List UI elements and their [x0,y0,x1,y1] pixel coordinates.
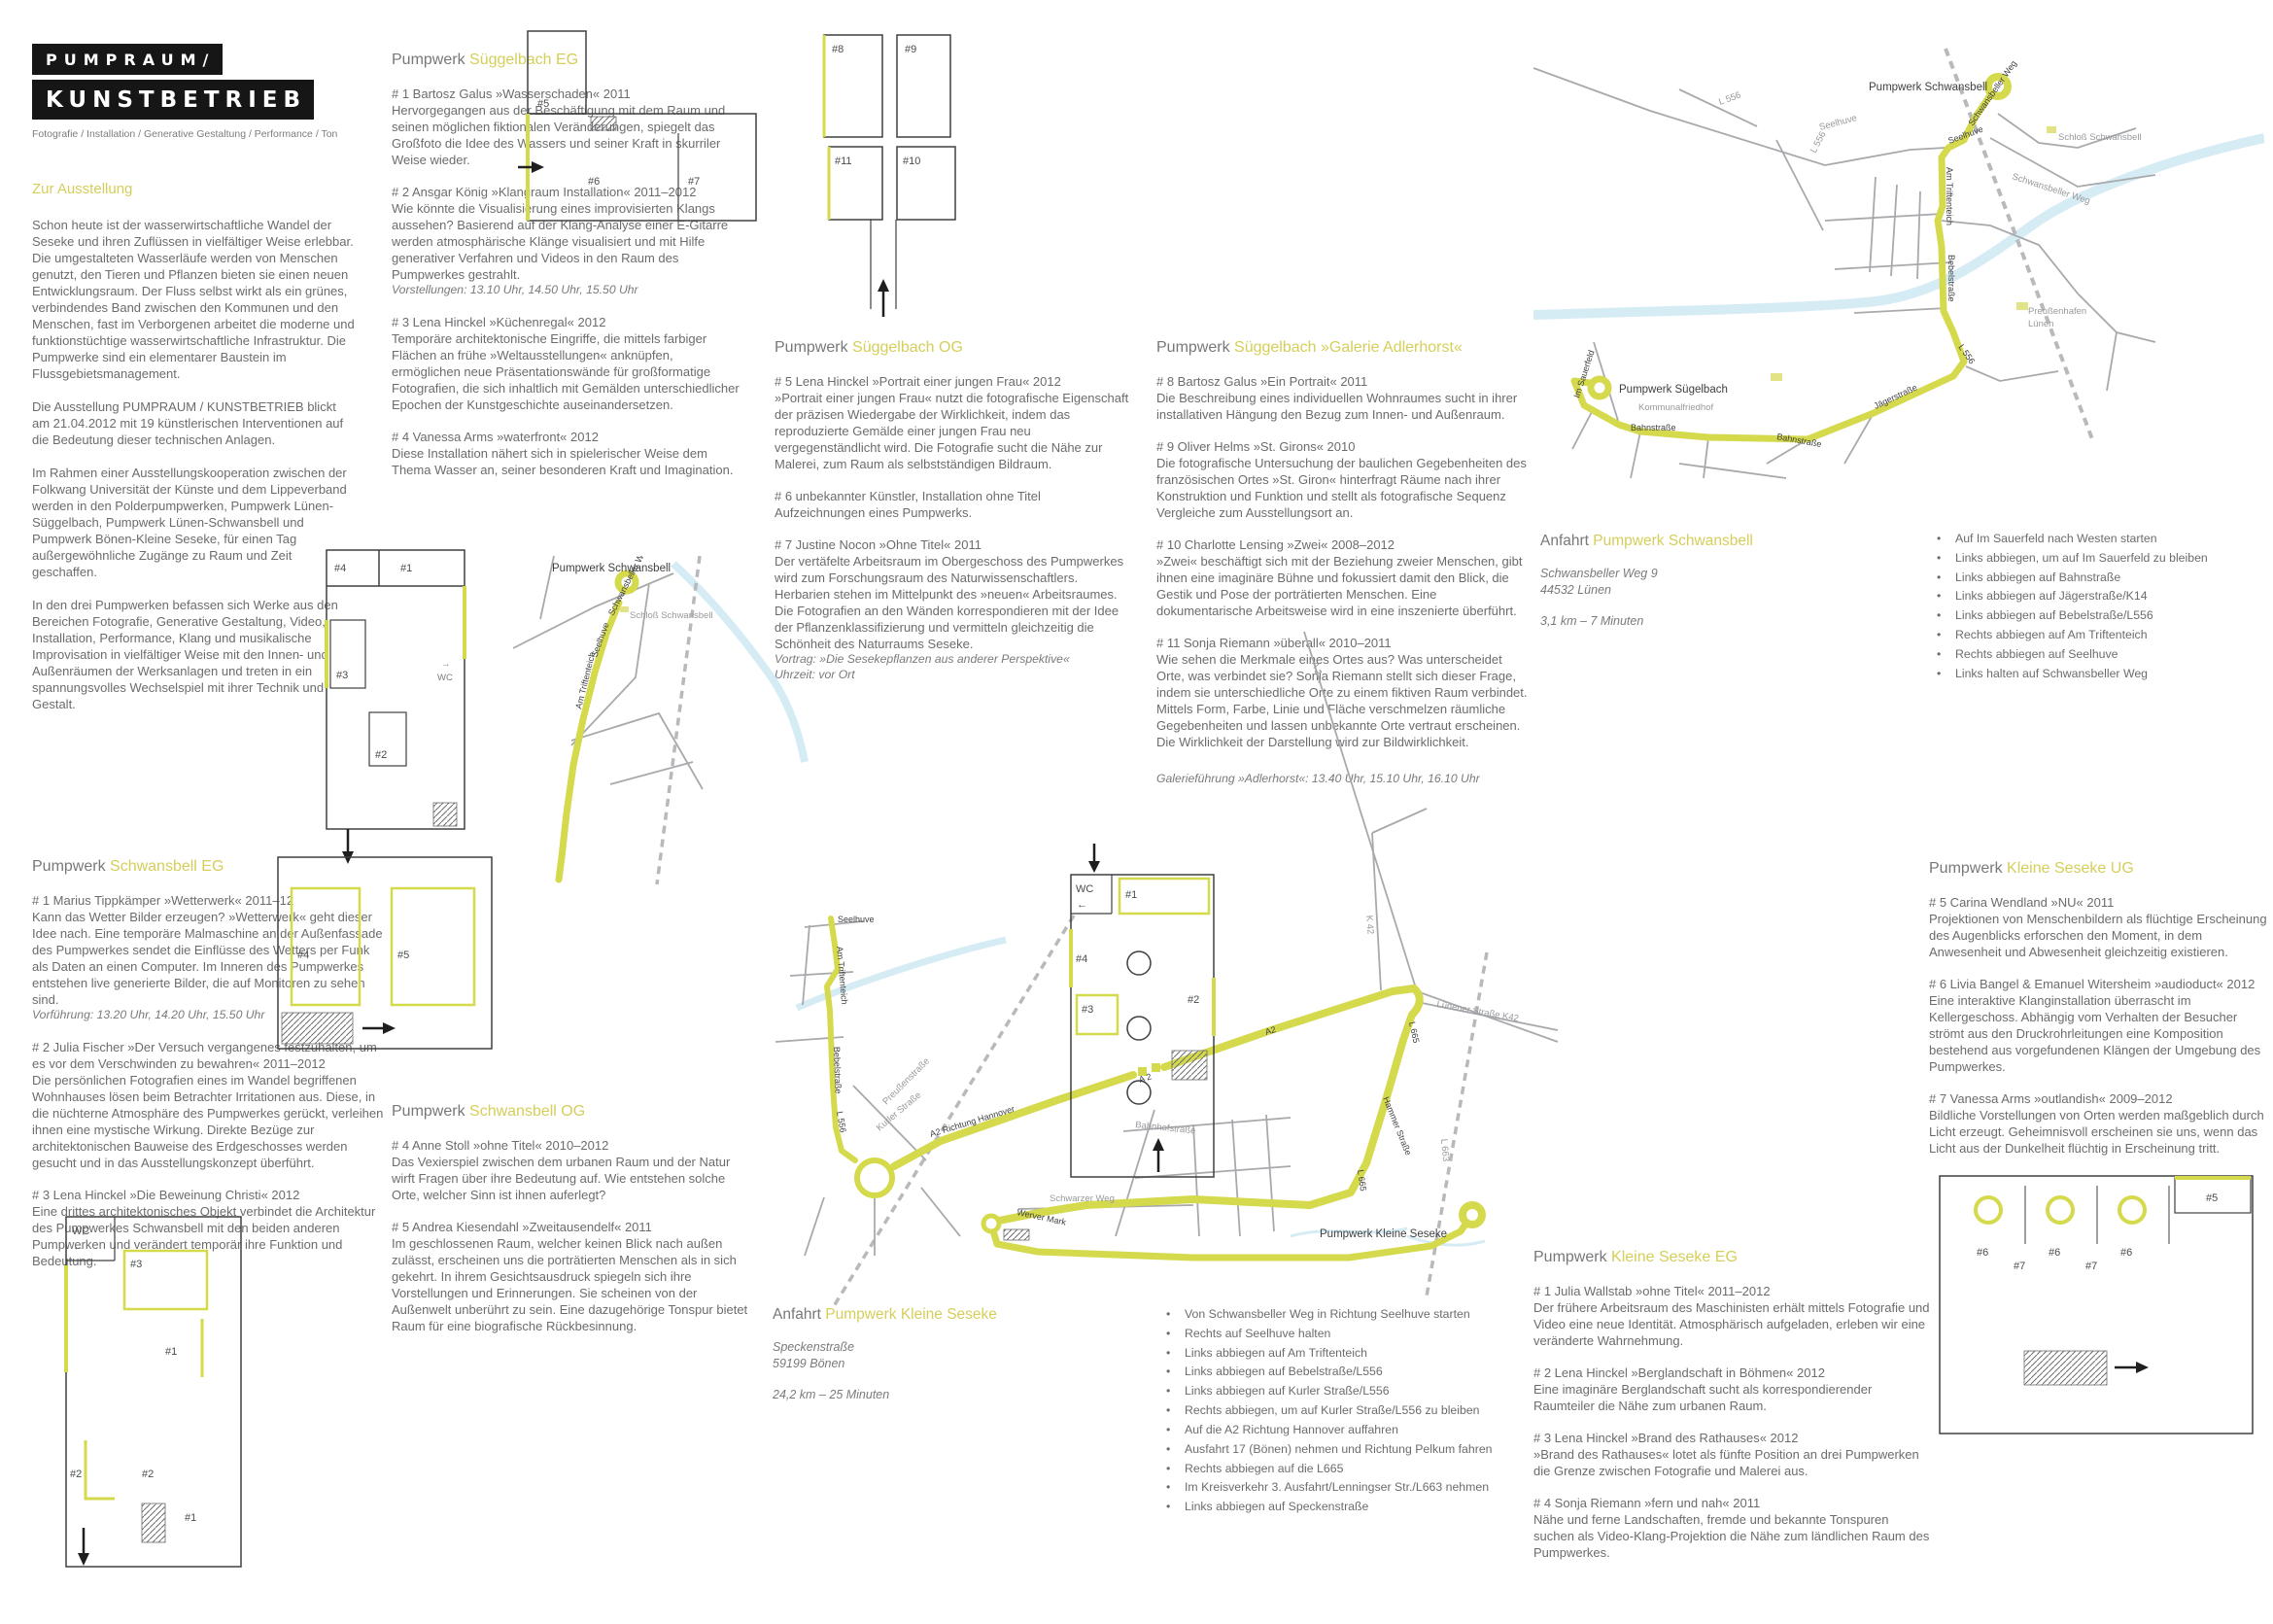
artwork-description: Die persönlichen Fotografien eines im Wa… [32,1072,384,1171]
anfahrt-heading-prefix: Anfahrt [773,1306,821,1323]
direction-step: Rechts abbiegen auf Seelhuve [1932,646,2267,664]
room-label: #7 [2085,1261,2097,1272]
artwork-title: # 3 Lena Hinckel »Brand des Rathauses« 2… [1533,1430,1930,1446]
directions-list-schwansbell: Auf Im Sauerfeld nach Westen startenLink… [1932,531,2267,685]
room-label: #2 [375,749,387,761]
road-label: Lünener Straße K42 [1435,999,1519,1024]
floorplan-seseke-ug: #5 #6 #7 #6 #7 #6 [1932,1157,2262,1443]
room-label: #1 [1125,889,1137,901]
artwork-description: Aufzeichnungen eines Pumpwerks. [775,504,1132,521]
artwork-description: Projektionen von Menschenbildern als flü… [1929,911,2269,960]
section-heading-accent: Süggelbach »Galerie Adlerhorst« [1234,339,1463,356]
room-label: #9 [905,44,916,55]
section-heading-accent: Süggelbach OG [852,339,963,356]
entry-list: # 1 Julia Wallstab »ohne Titel« 2011–201… [1533,1283,1930,1561]
floorplan-sueggelbach-og: #5 #6 #7 [518,21,766,230]
intro-section: Zur Ausstellung Schon heute ist der wass… [32,180,355,729]
poi-friedhof [1771,373,1782,381]
map-label-preussenhafen: Preußenhafen [2028,306,2086,317]
direction-step: Ausfahrt 17 (Bönen) nehmen und Richtung … [1161,1441,1569,1459]
route-label: Am Triftenteich [1945,167,1954,225]
artwork-entry: # 3 Lena Hinckel »Küchenregal« 2012 Temp… [392,314,743,413]
direction-step: Links abbiegen auf Jägerstraße/K14 [1932,588,2267,605]
section-heading-accent: Kleine Seseke UG [2007,860,2134,877]
artwork-title: # 3 Lena Hinckel »Küchenregal« 2012 [392,314,743,330]
direction-step: Rechts auf Seelhuve halten [1161,1326,1569,1343]
artwork-description: Nähe und ferne Landschaften, fremde und … [1533,1511,1930,1561]
artwork-title: # 9 Oliver Helms »St. Girons« 2010 [1156,438,1528,455]
logo-line2: KUNSTBETRIEB [32,80,314,120]
artwork-title: # 7 Vanessa Arms »outlandish« 2009–2012 [1929,1090,2269,1107]
room-label: #2 [1188,994,1199,1006]
direction-step: Von Schwansbeller Weg in Richtung Seelhu… [1161,1306,1569,1324]
direction-step: Rechts abbiegen, um auf Kurler Straße/L5… [1161,1402,1569,1420]
directions-list-seseke: Von Schwansbeller Weg in Richtung Seelhu… [1161,1306,1569,1518]
artwork-title: # 8 Bartosz Galus »Ein Portrait« 2011 [1156,373,1528,390]
room-label: #1 [185,1512,196,1524]
anfahrt-heading-accent: Pumpwerk Schwansbell [1593,533,1753,549]
anfahrt-heading-accent: Pumpwerk Kleine Seseke [825,1306,997,1323]
poi-preussenhafen [2016,302,2028,310]
artwork-title: # 6 Livia Bangel & Emanuel Witersheim »a… [1929,976,2269,992]
wc-note: WC [437,673,453,683]
wc-arrow-note: → [441,659,451,670]
section-heading-prefix: Pumpwerk [32,858,106,875]
artwork-title: # 4 Sonja Riemann »fern und nah« 2011 [1533,1495,1930,1511]
room-label: #11 [835,155,852,167]
floorplan-sueggelbach-eg: #4 #1 #3 #2 → WC [319,542,479,868]
artwork-entry: # 4 Sonja Riemann »fern und nah« 2011 Nä… [1533,1495,1930,1561]
section-seseke-eg: Pumpwerk Kleine Seseke EG # 1 Julia Wall… [1533,1248,1930,1576]
artwork-entry: # 3 Lena Hinckel »Brand des Rathauses« 2… [1533,1430,1930,1479]
road-label: A 2 [1309,661,1324,676]
floorplan-seseke-eg: WC ← #1 #4 #3 #2 [1063,842,1223,1206]
artwork-entry: # 5 Lena Hinckel »Portrait einer jungen … [775,373,1132,472]
road-label: L 663 [1438,1138,1451,1161]
room-label: #5 [2206,1192,2218,1204]
anfahrt-heading: Anfahrt Pumpwerk Schwansbell [1540,533,1861,550]
route-label: Seelhuve [838,915,875,924]
room-label: #1 [165,1346,177,1358]
room-label: #4 [1076,953,1087,965]
room-label: #4 [297,950,309,961]
room-label: #7 [688,176,700,188]
intro-paragraphs: Schon heute ist der wasserwirtschaftlich… [32,217,355,712]
brochure-page: PUMPRAUM/ KUNSTBETRIEB Fotografie / Inst… [0,0,2273,1624]
artwork-title: # 7 Justine Nocon »Ohne Titel« 2011 [775,536,1132,553]
direction-step: Links abbiegen auf Bahnstraße [1932,570,2267,587]
artwork-description: Die Beschreibung eines individuellen Woh… [1156,390,1528,423]
artwork-title: # 4 Vanessa Arms »waterfront« 2012 [392,429,743,445]
map-label-friedhof: Kommunalfriedhof [1638,402,1713,413]
floorplan-schwansbell-eg: WC ← #3 #1 #2 #2 #1 [56,1207,251,1596]
distance-duration: 3,1 km – 7 Minuten [1540,614,1861,628]
artwork-entry: # 8 Bartosz Galus »Ein Portrait« 2011 Di… [1156,373,1528,423]
section-heading-accent: Kleine Seseke EG [1611,1249,1738,1265]
road-label: Sch­wansbeller Weg [2011,171,2091,206]
artwork-title: # 1 Julia Wallstab »ohne Titel« 2011–201… [1533,1283,1930,1299]
distance-duration: 24,2 km – 25 Minuten [773,1388,1093,1401]
map-label-pumpwerk-kleine-seseke: Pumpwerk Kleine Seseke [1320,1228,1447,1240]
route-label: L 665 [1407,1020,1421,1044]
river-seseke [1533,138,2264,315]
artwork-entry: # 6 unbekannter Künstler, Installation o… [775,488,1132,521]
logo-line1: PUMPRAUM/ [32,44,223,75]
artwork-description: »Portrait einer jungen Frau« nutzt die f… [775,390,1132,472]
intro-paragraph: Die Ausstellung PUMPRAUM / KUNSTBETRIEB … [32,398,355,448]
section-heading-prefix: Pumpwerk [392,52,465,68]
map-boenen-anfahrt: Pumpwerk Schwansbell Schloß Schwansbell … [513,556,1563,1306]
artwork-entry: # 9 Oliver Helms »St. Girons« 2010 Die f… [1156,438,1528,521]
room-label: #6 [588,176,600,188]
anfahrt-schwansbell: Anfahrt Pumpwerk Schwansbell Schwansbell… [1540,533,1861,628]
wc-arrow: ← [73,1241,84,1253]
room-label: #2 [70,1469,82,1480]
map-label-pumpwerk-schwansbell: Pumpwerk Schwansbell [552,563,671,574]
room-label: #6 [2120,1247,2132,1259]
artwork-title: # 6 unbekannter Künstler, Installation o… [775,488,1132,504]
direction-step: Links abbiegen auf Speckenstraße [1161,1499,1569,1516]
room-label: #10 [903,155,920,167]
section-heading: Pumpwerk Süggelbach OG [775,338,1132,359]
room-label: #7 [2014,1261,2025,1272]
road-network [1533,68,2155,478]
end-marker [1463,1205,1482,1225]
route-label: Hammer Straße [1381,1095,1413,1157]
direction-step: Links abbiegen auf Am Triftenteich [1161,1345,1569,1363]
artwork-entry: # 4 Vanessa Arms »waterfront« 2012 Diese… [392,429,743,478]
road-label: K 42 [1363,915,1376,934]
address-line-2: 59199 Bönen [773,1356,1093,1372]
artwork-note: Vorstellungen: 13.10 Uhr, 14.50 Uhr, 15.… [392,283,743,298]
intro-heading: Zur Ausstellung [32,180,355,199]
address-line-1: Speckenstraße [773,1339,1093,1356]
artwork-description: Eine interaktive Klanginstallation überr… [1929,992,2269,1075]
route-label: Bebelstraße [1946,255,1956,302]
artwork-title: # 2 Lena Hinckel »Berglandschaft in Böhm… [1533,1365,1930,1381]
artwork-entry: # 1 Julia Wallstab »ohne Titel« 2011–201… [1533,1283,1930,1349]
address-line-2: 44532 Lünen [1540,582,1861,599]
room-label: #1 [400,563,412,574]
direction-step: Links abbiegen auf Kurler Straße/L556 [1161,1383,1569,1400]
logo-subtitle: Fotografie / Installation / Generative G… [32,128,362,140]
map-label-preussenhafen-2: Lünen [2028,319,2053,329]
direction-step: Auf Im Sauerfeld nach Westen starten [1932,531,2267,548]
roundabout-marker [983,1216,999,1231]
artwork-entry: # 2 Lena Hinckel »Berglandschaft in Böhm… [1533,1365,1930,1414]
map-label-pumpwerk-suegelbach: Pumpwerk Sügelbach [1619,384,1728,396]
entry-list: # 5 Carina Wendland »NU« 2011 Projektion… [1929,894,2269,1157]
section-heading: Pumpwerk Kleine Seseke EG [1533,1248,1930,1268]
artwork-description: Diese Installation nähert sich in spiele… [392,445,743,478]
room-label: #2 [142,1469,154,1480]
address-line-1: Schwansbeller Weg 9 [1540,566,1861,582]
artwork-title: # 3 Lena Hinckel »Die Beweinung Christi«… [32,1187,384,1203]
road-label: Kurler Straße [875,1090,923,1134]
floorplan-schwansbell-og: #4 #5 [270,849,499,1058]
logo-block: PUMPRAUM/ KUNSTBETRIEB Fotografie / Inst… [32,44,362,140]
map-label-schloss: Schloß Schwansbell [630,610,713,621]
artwork-description: »Brand des Rathauses« lotet als fünfte P… [1533,1446,1930,1479]
floorplan-adlerhorst: #8 #9 #11 #10 [805,25,1028,327]
intro-paragraph: Schon heute ist der wasserwirtschaftlich… [32,217,355,382]
direction-step: Links abbiegen auf Bebelstraße/L556 [1932,607,2267,625]
poi-schloss [2047,126,2056,133]
anfahrt-heading-prefix: Anfahrt [1540,533,1589,549]
room-label: #5 [537,98,549,110]
section-heading-prefix: Pumpwerk [1156,339,1230,356]
anfahrt-kleine-seseke: Anfahrt Pumpwerk Kleine Seseke Speckenst… [773,1306,1093,1401]
road-label: L 556 [1808,130,1829,155]
artwork-entry: # 7 Vanessa Arms »outlandish« 2009–2012 … [1929,1090,2269,1157]
intro-paragraph: In den drei Pumpwerken befassen sich Wer… [32,597,355,712]
room-label: #6 [2049,1247,2060,1259]
room-label: #4 [334,563,346,574]
section-heading-prefix: Pumpwerk [1533,1249,1607,1265]
route-label: L 665 [1356,1169,1368,1192]
map-label-pumpwerk-schwansbell: Pumpwerk Schwansbell [1869,82,1987,93]
section-heading: Pumpwerk Süggelbach »Galerie Adlerhorst« [1156,338,1528,359]
direction-step: Rechts abbiegen auf Am Triftenteich [1932,627,2267,644]
artwork-title: # 10 Charlotte Lensing »Zwei« 2008–2012 [1156,536,1528,553]
wc-label: WC [72,1226,89,1237]
artwork-description: Bildliche Vorstellungen von Orten werden… [1929,1107,2269,1157]
section-heading: Pumpwerk Kleine Seseke UG [1929,859,2269,880]
wc-arrow: ← [1077,899,1087,911]
artwork-description: Temporäre architektonische Eingriffe, di… [392,330,743,413]
artwork-description: Die fotografische Untersuchung der bauli… [1156,455,1528,521]
route-label: Bahnstraße [1631,423,1676,432]
road-label: L 556 [1717,89,1742,107]
artwork-entry: # 6 Livia Bangel & Emanuel Witersheim »a… [1929,976,2269,1075]
bridge-hatch [1004,1229,1029,1240]
map-luenen-anfahrt: Pumpwerk Schwansbell Schloß Schwansbell … [1533,21,2264,507]
road-label: Seelhuve [1818,113,1858,133]
railway-line [1946,49,2092,439]
wc-label: WC [1076,883,1093,895]
direction-step: Rechts abbiegen auf die L665 [1161,1461,1569,1478]
artwork-entry: # 2 Julia Fischer »Der Versuch vergangen… [32,1039,384,1171]
direction-step: Auf die A2 Richtung Hannover auffahren [1161,1422,1569,1439]
artwork-entry: # 5 Carina Wendland »NU« 2011 Projektion… [1929,894,2269,960]
artwork-description: Eine imaginäre Berglandschaft sucht als … [1533,1381,1930,1414]
artwork-title: # 5 Lena Hinckel »Portrait einer jungen … [775,373,1132,390]
direction-step: Links abbiegen auf Bebelstraße/L556 [1161,1364,1569,1381]
room-label: #3 [336,670,348,681]
end-marker [1591,379,1608,397]
room-label: #3 [1082,1004,1093,1016]
road-network [513,556,1558,1256]
section-heading-prefix: Pumpwerk [1929,860,2003,877]
direction-step: Links halten auf Schwansbeller Weg [1932,666,2267,683]
direction-step: Links abbiegen, um auf Im Sauerfeld zu b… [1932,550,2267,568]
map-label-schloss: Schloß Schwansbell [2058,132,2142,143]
anfahrt-heading: Anfahrt Pumpwerk Kleine Seseke [773,1306,1093,1324]
intro-paragraph: Im Rahmen einer Ausstellungskooperation … [32,465,355,580]
artwork-description: Der frühere Arbeitsraum des Maschinisten… [1533,1299,1930,1349]
direction-step: Im Kreisverkehr 3. Ausfahrt/Lenningser S… [1161,1479,1569,1497]
room-label: #6 [1977,1247,1988,1259]
poi-schloss [620,606,629,612]
room-label: #8 [832,44,844,55]
section-heading-accent: Schwansbell EG [110,858,224,875]
room-label: #3 [130,1259,142,1270]
section-seseke-ug: Pumpwerk Kleine Seseke UG # 5 Carina Wen… [1929,859,2269,1172]
room-label: #5 [397,950,409,961]
route-label: Bebelstraße [832,1047,844,1094]
section-heading-prefix: Pumpwerk [775,339,848,356]
section-heading-prefix: Pumpwerk [392,1103,465,1120]
artwork-title: # 5 Carina Wendland »NU« 2011 [1929,894,2269,911]
